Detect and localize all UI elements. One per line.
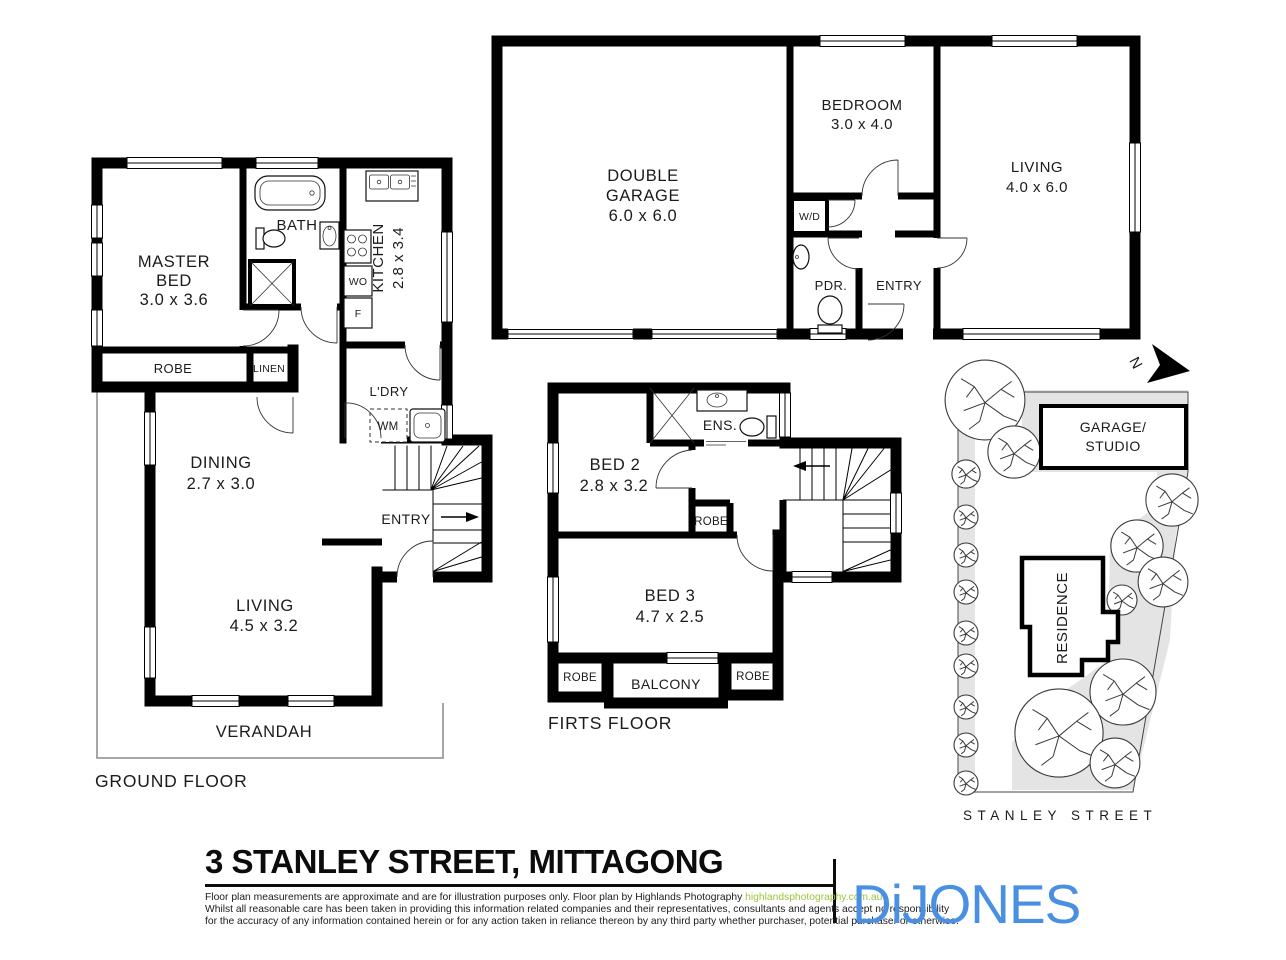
linen-label: LINEN (253, 363, 285, 375)
double-garage-label2: GARAGE (606, 187, 680, 205)
ground-floor-plan: MASTER BED 3.0 x 3.6 BATH KITCHEN 2.8 x … (92, 158, 493, 792)
living-label: LIVING (236, 597, 294, 615)
disclaimer-text-1: Floor plan measurements are approximate … (205, 892, 745, 903)
disclaimer: Floor plan measurements are approximate … (205, 892, 959, 927)
page-title: 3 STANLEY STREET, MITTAGONG (205, 843, 723, 881)
laundry-label: L'DRY (370, 384, 409, 399)
garage-studio-label2: STUDIO (1085, 438, 1140, 454)
master-bed-label: MASTER (138, 253, 210, 271)
bath-label: BATH (277, 217, 318, 234)
master-bed-label2: BED (156, 272, 192, 290)
washing-machine-label: WM (377, 421, 398, 433)
first-floor-label: FIRTS FLOOR (548, 713, 672, 733)
fridge-label: F (355, 308, 362, 320)
verandah-label: VERANDAH (216, 723, 313, 741)
ensuite-label: ENS. (703, 417, 737, 433)
garage-level-plan: DOUBLE GARAGE 6.0 x 6.0 BEDROOM 3.0 x 4.… (492, 36, 1141, 341)
bed2-label: BED 2 (590, 456, 641, 474)
residence-footprint: RESIDENCE (1022, 558, 1118, 675)
first-floor-plan: BED 2 2.8 x 3.2 ENS. ROBE BED 3 4.7 x 2.… (548, 383, 902, 734)
ground-stairs (383, 446, 482, 572)
site-plan: GARAGE/ STUDIO RESIDENCE N STANLEY STREE… (945, 344, 1198, 823)
stairs-arrow-icon (466, 512, 479, 522)
kitchen-dims: 2.8 x 3.4 (390, 227, 407, 289)
upper-living-dims: 4.0 x 6.0 (1006, 179, 1068, 196)
dijones-logo: DiJONES (852, 872, 1080, 936)
dining-label: DINING (190, 454, 251, 472)
north-arrow-icon: N (1125, 344, 1190, 383)
entry-label: ENTRY (381, 511, 430, 527)
robe-bed2-label: ROBE (694, 516, 728, 528)
kitchen-sink (366, 171, 418, 201)
floorplan-page: MASTER BED 3.0 x 3.6 BATH KITCHEN 2.8 x … (0, 0, 1286, 960)
upper-entry-label: ENTRY (876, 278, 922, 293)
north-label: N (1125, 354, 1145, 372)
wall-oven-label: WO (349, 276, 367, 288)
disclaimer-line1: Floor plan measurements are approximate … (205, 892, 959, 904)
shower-ground (250, 261, 294, 306)
powder-label: PDR. (815, 278, 848, 293)
bed3-dims: 4.7 x 2.5 (636, 608, 705, 626)
disclaimer-line2: Whilst all reasonable care has been take… (205, 904, 959, 916)
garage-doors-arcs (828, 160, 967, 340)
dining-dims: 2.7 x 3.0 (187, 475, 256, 493)
upper-living-label: LIVING (1011, 159, 1063, 176)
residence-label: RESIDENCE (1054, 572, 1071, 664)
garage-studio-label: GARAGE/ (1080, 419, 1147, 435)
floorplan-canvas: MASTER BED 3.0 x 3.6 BATH KITCHEN 2.8 x … (0, 0, 1286, 830)
first-stairs (783, 449, 891, 572)
bed2-dims: 2.8 x 3.2 (580, 477, 649, 495)
bathtub (255, 176, 325, 210)
double-garage-dims: 6.0 x 6.0 (609, 207, 678, 225)
balcony-label: BALCONY (631, 676, 701, 692)
disclaimer-line3: for the accuracy of any information cont… (205, 916, 959, 928)
robe-label: ROBE (154, 361, 192, 376)
bedroom-dims: 3.0 x 4.0 (831, 116, 893, 133)
bedroom-label: BEDROOM (821, 97, 902, 114)
double-garage-label: DOUBLE (607, 167, 678, 185)
master-bed-dims: 3.0 x 3.6 (140, 291, 209, 309)
stove (344, 230, 371, 263)
garage-studio: GARAGE/ STUDIO (1041, 406, 1186, 468)
kitchen-label: KITCHEN (370, 223, 387, 292)
title-underline (205, 884, 834, 887)
street-label: STANLEY STREET (963, 808, 1157, 823)
bed3-label: BED 3 (645, 587, 696, 605)
ground-floor-label: GROUND FLOOR (95, 771, 248, 791)
living-dims: 4.5 x 3.2 (230, 617, 299, 635)
laundry-tub (410, 409, 445, 442)
robe-left-label: ROBE (563, 672, 597, 684)
washer-dryer-label: W/D (799, 211, 820, 223)
robe-right-label: ROBE (736, 671, 770, 683)
basin-bath (320, 222, 339, 249)
first-doors (656, 450, 773, 571)
